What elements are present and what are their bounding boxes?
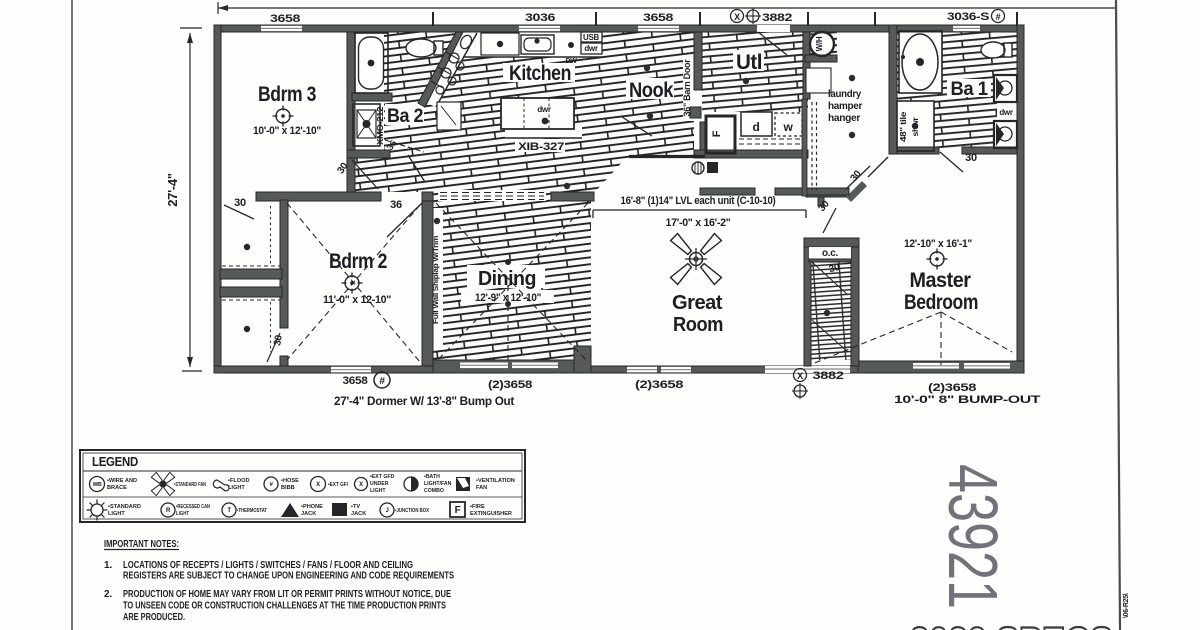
- svg-text:ARE PRODUCED.: ARE PRODUCED.: [123, 612, 185, 623]
- svg-text:\06-R25\: \06-R25\: [1123, 593, 1130, 618]
- svg-text:shwr: shwr: [911, 117, 920, 136]
- svg-text:•BATH: •BATH: [424, 474, 440, 480]
- svg-text:3036-S: 3036-S: [947, 11, 989, 23]
- svg-text:J: J: [385, 508, 388, 514]
- svg-text:Bdrm 3: Bdrm 3: [258, 83, 316, 106]
- svg-text:X: X: [734, 12, 740, 22]
- svg-text:(2)3658: (2)3658: [488, 379, 532, 391]
- svg-text:10'-0" x 12'-10": 10'-0" x 12'-10": [253, 125, 321, 137]
- svg-text:Master: Master: [910, 269, 971, 292]
- svg-text:2.: 2.: [104, 589, 113, 600]
- svg-text:16'-8" (1)14" LVL each unit (C: 16'-8" (1)14" LVL each unit (C-10-10): [621, 195, 777, 207]
- svg-text:36: 36: [390, 199, 402, 211]
- svg-text:LIGHT/FAN: LIGHT/FAN: [424, 481, 452, 487]
- svg-text:LEGEND: LEGEND: [92, 455, 138, 469]
- svg-text:10'-0" 8" BUMP-OUT: 10'-0" 8" BUMP-OUT: [894, 394, 1041, 406]
- svg-text:Dining: Dining: [478, 268, 536, 290]
- svg-text:#: #: [996, 12, 1001, 22]
- svg-text:W/B: W/B: [93, 482, 103, 488]
- svg-text:3658: 3658: [270, 13, 300, 25]
- svg-text:Utl: Utl: [736, 51, 762, 74]
- svg-text:Great: Great: [672, 292, 723, 314]
- svg-text:EXTINGUISHER: EXTINGUISHER: [470, 511, 512, 517]
- svg-text:Kitchen: Kitchen: [509, 62, 571, 85]
- svg-text:•JUNCTION BOX: •JUNCTION BOX: [395, 508, 429, 514]
- svg-text:3658: 3658: [643, 12, 673, 24]
- svg-text:•EXT GFD: •EXT GFD: [370, 474, 395, 480]
- svg-text:dwr: dwr: [537, 105, 551, 114]
- svg-text:Room: Room: [673, 314, 723, 336]
- svg-text:JACK: JACK: [351, 511, 366, 517]
- svg-text:•THERMOSTAT: •THERMOSTAT: [237, 508, 268, 514]
- svg-text:F: F: [711, 130, 723, 137]
- svg-text:48" tile: 48" tile: [899, 111, 908, 142]
- svg-text:DW: DW: [565, 58, 577, 65]
- svg-text:12'-9" x 12'-10": 12'-9" x 12'-10": [475, 292, 541, 304]
- svg-text:PRODUCTION OF HOME MAY VARY FR: PRODUCTION OF HOME MAY VARY FROM LIT OR …: [123, 589, 451, 600]
- svg-text:BIBB: BIBB: [281, 485, 295, 491]
- svg-text:1.: 1.: [104, 560, 113, 571]
- svg-text:3882: 3882: [813, 370, 844, 382]
- svg-text:36" Barn Door: 36" Barn Door: [682, 59, 692, 117]
- svg-text:27'-4" Dormer W/ 13'-8" Bump O: 27'-4" Dormer W/ 13'-8" Bump Out: [334, 394, 514, 408]
- svg-text:30: 30: [965, 152, 977, 164]
- svg-text:dwr: dwr: [999, 108, 1013, 117]
- svg-text:LIGHT: LIGHT: [108, 511, 125, 517]
- svg-text:3658: 3658: [343, 375, 368, 387]
- svg-text:•HOSE: •HOSE: [281, 478, 299, 484]
- svg-text:27'-4": 27'-4": [165, 173, 180, 207]
- svg-text:•WIRE AND: •WIRE AND: [107, 478, 137, 484]
- svg-text:(2)3658: (2)3658: [928, 382, 976, 394]
- svg-text:3882: 3882: [762, 12, 792, 24]
- svg-text:Ba 2: Ba 2: [387, 106, 423, 127]
- svg-text:w: w: [782, 120, 793, 134]
- svg-text:REGISTERS ARE SUBJECT TO CHANG: REGISTERS ARE SUBJECT TO CHANGE UPON ENG…: [123, 571, 454, 582]
- svg-text:UNDER: UNDER: [370, 481, 389, 487]
- svg-text:•STANDARD: •STANDARD: [108, 504, 141, 510]
- svg-text:JACK: JACK: [301, 511, 316, 517]
- svg-text:Bdrm 2: Bdrm 2: [329, 250, 387, 273]
- svg-text:11'-0" x 12-10": 11'-0" x 12-10": [323, 294, 391, 306]
- svg-text:TO UNSEEN CODE OR CONSTRUCTION: TO UNSEEN CODE OR CONSTRUCTION CHALLENGE…: [123, 601, 446, 612]
- svg-text:USB: USB: [583, 33, 600, 42]
- svg-text:LIGHT: LIGHT: [228, 485, 245, 491]
- svg-text:BRACE: BRACE: [107, 485, 127, 491]
- svg-text:•FIRE: •FIRE: [470, 504, 485, 510]
- svg-text:IMPORTANT NOTES:: IMPORTANT NOTES:: [104, 538, 179, 550]
- svg-text:Ba 1: Ba 1: [951, 79, 989, 100]
- svg-text:•STANDARD FAN: •STANDARD FAN: [174, 482, 206, 488]
- svg-text:LIGHT: LIGHT: [176, 511, 190, 517]
- svg-text:3036: 3036: [525, 12, 555, 24]
- svg-text:•TV: •TV: [351, 504, 360, 510]
- svg-text:X: X: [359, 482, 363, 488]
- svg-text:Full Wall Shiplap W/Trim: Full Wall Shiplap W/Trim: [431, 235, 440, 324]
- svg-text:laundry: laundry: [828, 89, 862, 100]
- svg-text:hamper: hamper: [828, 101, 862, 112]
- svg-text:LOCATIONS OF RECEPTS / LIGHTS: LOCATIONS OF RECEPTS / LIGHTS / SWITCHES…: [123, 560, 413, 571]
- svg-text:17'-0" x 16'-2": 17'-0" x 16'-2": [666, 217, 731, 229]
- svg-text:LIGHT: LIGHT: [370, 488, 386, 494]
- svg-text:•FLOOD: •FLOOD: [228, 478, 250, 484]
- svg-text:X: X: [797, 371, 803, 381]
- svg-text:dwr: dwr: [584, 44, 598, 53]
- svg-text:#: #: [379, 376, 385, 387]
- svg-text:12'-10" x 16'-1": 12'-10" x 16'-1": [904, 238, 972, 250]
- svg-text:(2)3658: (2)3658: [635, 379, 683, 391]
- svg-text:F: F: [455, 505, 461, 516]
- svg-text:43921: 43921: [934, 464, 1012, 609]
- svg-text:•PHONE: •PHONE: [301, 504, 323, 510]
- svg-text:hanger: hanger: [828, 113, 860, 124]
- svg-text:d: d: [752, 120, 759, 134]
- svg-text:XMO-212: XMO-212: [376, 106, 385, 145]
- svg-text:FAN: FAN: [476, 485, 487, 491]
- svg-text:Nook: Nook: [629, 79, 674, 102]
- svg-text:W/H: W/H: [815, 36, 824, 51]
- svg-text:XIB-327: XIB-327: [518, 141, 564, 153]
- svg-text:•RECESSED CAN: •RECESSED CAN: [176, 504, 210, 510]
- svg-text:X: X: [316, 482, 320, 488]
- svg-text:•VENTILATION: •VENTILATION: [476, 478, 515, 484]
- svg-text:o.c.: o.c.: [822, 248, 839, 259]
- svg-text:•EXT GFI: •EXT GFI: [328, 482, 348, 488]
- svg-text:Bedroom: Bedroom: [904, 291, 978, 314]
- svg-text:COMBO: COMBO: [424, 488, 444, 494]
- svg-text:2020 SPECS: 2020 SPECS: [910, 620, 1113, 630]
- svg-text:30: 30: [234, 197, 246, 209]
